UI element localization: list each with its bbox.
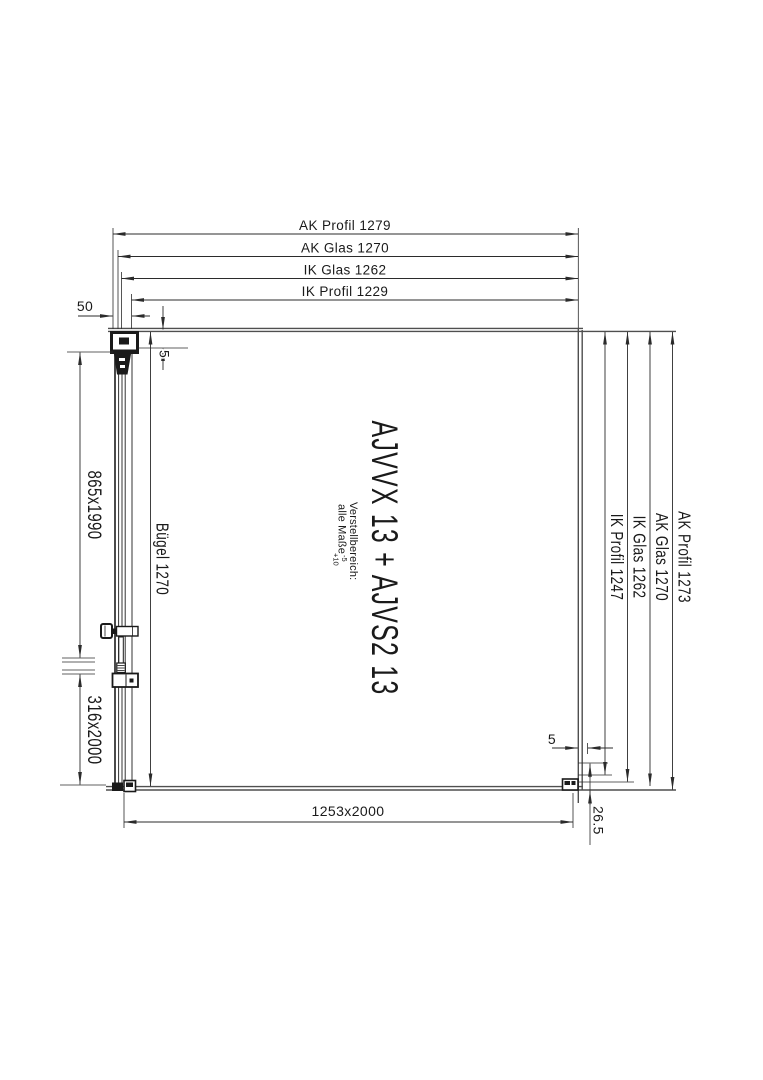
product-title-block: AJVVX 13 + AJVS2 13 Verstellbereich: all… (332, 421, 407, 696)
dim-label-left-lower: 316x2000 (84, 695, 106, 764)
dim-label-bottom-rail: 26.5 (591, 806, 607, 835)
dim-label-ak-profil-width: AK Profil 1279 (299, 218, 391, 233)
glass-clamp (113, 674, 139, 688)
dimension-left-upper-865x1990: 865x1990 (62, 352, 113, 662)
corner-piece (112, 783, 123, 792)
dimensions-top: AK Profil 1279 AK Glas 1270 IK Glas 1262… (113, 218, 578, 329)
product-title: AJVVX 13 + AJVS2 13 (364, 421, 406, 696)
knob-plate (117, 627, 139, 637)
adjustment-note: Verstellbereich: alle Maße -5 +10 (332, 502, 360, 580)
note-line1: Verstellbereich: (347, 502, 359, 580)
hinge-screw (119, 338, 129, 345)
corner-bracket-screw (126, 783, 133, 788)
dim-label-ik-glas-width: IK Glas 1262 (304, 263, 387, 278)
dim-label-gap-top: 5 (157, 350, 173, 358)
rod-shaft (119, 637, 124, 663)
dim-label-bottom: 1253x2000 (312, 803, 385, 819)
bottom-right-corner-bracket (563, 779, 579, 790)
hinge-slot (119, 358, 125, 361)
dim-label-buegel: Bügel 1270 (152, 523, 171, 595)
hinge-bar (112, 350, 137, 354)
dimensions-right: IK Profil 1247 IK Glas 1262 AK Glas 1270… (578, 332, 693, 790)
clamp-screw (130, 679, 134, 683)
dim-label-gap-bottom-right: 5 (548, 731, 556, 747)
dimension-left-lower-316x2000: 316x2000 (60, 670, 106, 785)
note-tolerance-plus: +10 (332, 553, 341, 566)
corner-bracket-screw (565, 781, 571, 785)
dim-label-ak-glas-width: AK Glas 1270 (301, 241, 389, 256)
dim-label-left-upper: 865x1990 (84, 470, 106, 539)
corner-bracket-screw (572, 781, 576, 785)
hinge-slot (120, 365, 125, 368)
technical-drawing-page: AK Profil 1279 AK Glas 1270 IK Glas 1262… (0, 0, 763, 1080)
adjustment-rod (117, 637, 126, 673)
hinge-lower-arm (114, 354, 131, 375)
clamp-body (113, 674, 139, 688)
shower-door-technical-drawing: AK Profil 1279 AK Glas 1270 IK Glas 1262… (0, 0, 763, 1080)
dim-label-ik-profil-width: IK Profil 1229 (302, 284, 389, 299)
knob-head (101, 624, 112, 638)
dimension-buegel: Bügel 1270 (151, 332, 172, 786)
dimension-wall-offset-50: 50 (77, 298, 150, 316)
note-line2: alle Maße (336, 504, 348, 554)
knob-handle (101, 624, 138, 638)
dimension-bottom-1253x2000: 1253x2000 (124, 793, 573, 828)
dim-label-ak-glas-height: AK Glas 1270 (652, 513, 671, 601)
dimension-gap-bottom-right-5: 5 (548, 731, 613, 754)
dim-label-ik-profil-height: IK Profil 1247 (607, 514, 626, 601)
dim-label-wall-offset: 50 (77, 298, 93, 314)
dim-label-ik-glas-height: IK Glas 1262 (629, 516, 648, 599)
dim-label-ak-profil-height: AK Profil 1273 (674, 511, 693, 603)
